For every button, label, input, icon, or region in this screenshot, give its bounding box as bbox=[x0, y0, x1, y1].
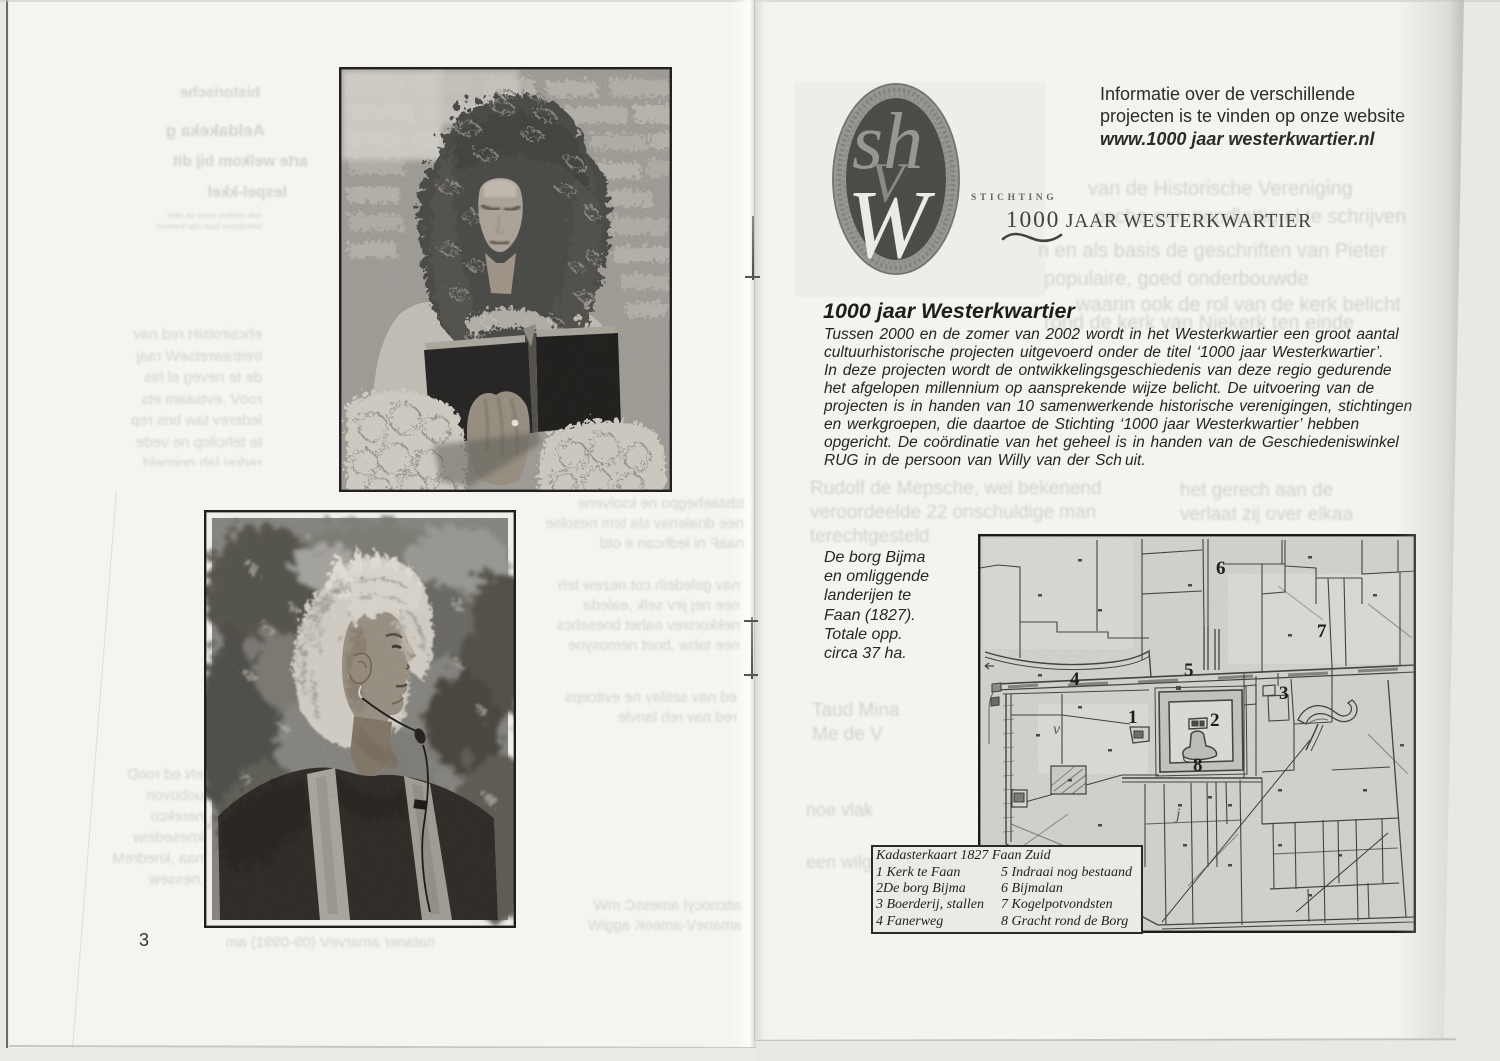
svg-text:7: 7 bbox=[1317, 621, 1327, 642]
svg-text:5: 5 bbox=[1184, 660, 1194, 681]
svg-text:1: 1 bbox=[1128, 707, 1138, 728]
svg-text:ν: ν bbox=[1053, 721, 1061, 738]
svg-text:6: 6 bbox=[1216, 558, 1226, 579]
svg-text:3: 3 bbox=[1279, 683, 1289, 704]
svg-text:4: 4 bbox=[1070, 669, 1080, 690]
svg-text:2: 2 bbox=[1210, 710, 1220, 731]
svg-text:W: W bbox=[847, 171, 936, 278]
svg-text:8: 8 bbox=[1193, 755, 1203, 776]
svg-text:j: j bbox=[1174, 806, 1181, 823]
